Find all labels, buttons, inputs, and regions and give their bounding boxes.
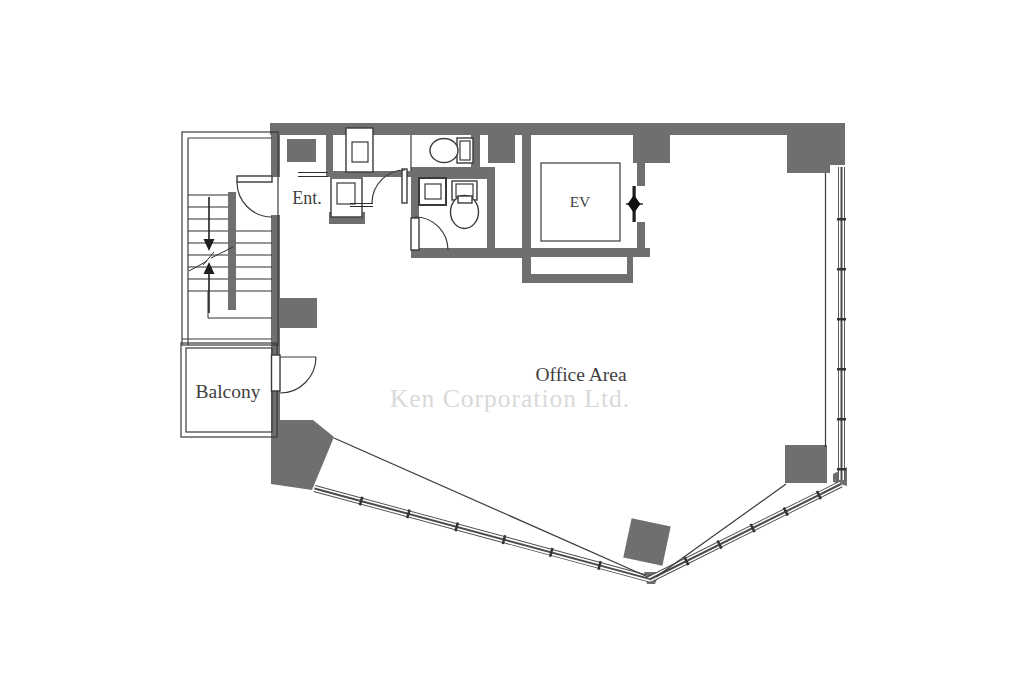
entrance-label: Ent. [292,188,322,208]
ev-east-wall-upper [637,135,645,186]
elevator [541,163,643,241]
sink-cabinet-icon [346,128,373,172]
elevator-label: EV [570,193,591,210]
column-southeast [785,445,827,483]
stair-break-line [189,261,207,271]
stair-door-leaf [237,176,272,182]
southwest-angled-column [271,420,334,490]
column-northeast-foot [787,160,830,173]
elevator-door-icon [626,186,643,222]
watermark: Ken Corporation Ltd. [390,384,630,413]
column-south-rotated [623,518,670,565]
washbasin-icon-wc2 [419,178,446,205]
inner-face-southeast [656,484,786,577]
stair-door-arc [237,182,272,217]
washbasin-icon [331,178,362,217]
ev-west-wall [522,125,531,283]
balcony-door-swing [272,355,317,393]
office-area-label: Office Area [535,364,626,385]
pipe-shaft [287,139,316,162]
floor-plan-canvas: Ken Corporation Ltd. Ent. EV Balcony Off… [0,0,1024,683]
ev-service-south-wall [522,274,633,283]
west-wall-upper [271,123,280,177]
stairwell [182,132,278,345]
sanitary-fixtures [298,128,479,250]
window-band-east [837,167,846,480]
window-band-southwest [313,484,651,583]
closet-wall [326,135,333,177]
wc2-east-wall [487,179,495,258]
stair-break-line [203,252,214,265]
toilet-tank-icon [457,138,473,163]
toilet-icon-lower [451,181,479,229]
balcony-door-arc [280,357,316,393]
ev-east-wall-lower [637,222,645,250]
duct-wall [488,130,515,163]
wc2-door-swing [411,217,448,250]
west-wall-middle [271,215,280,355]
wc2-west-wall [411,179,419,218]
wc2-south-wall [411,248,522,258]
ev-service-east-wall [627,250,633,283]
floor-plan-drawing: Ken Corporation Ltd. Ent. EV Balcony Off… [0,0,1024,683]
stair-stringer-wall [228,192,236,310]
window-band-southeast [647,480,843,584]
wc2-door-leaf [411,218,419,250]
stairwell-door-swing [237,176,272,217]
balcony-door-leaf [272,355,281,391]
balcony-label: Balcony [196,381,261,402]
toilet-icon-upper [430,138,473,163]
wc1-door-leaf [402,169,407,203]
column-west [279,298,317,328]
wc2-door-arc [415,217,448,250]
toilet-seat-joint [458,196,472,203]
toilet-bowl-icon [430,139,458,163]
